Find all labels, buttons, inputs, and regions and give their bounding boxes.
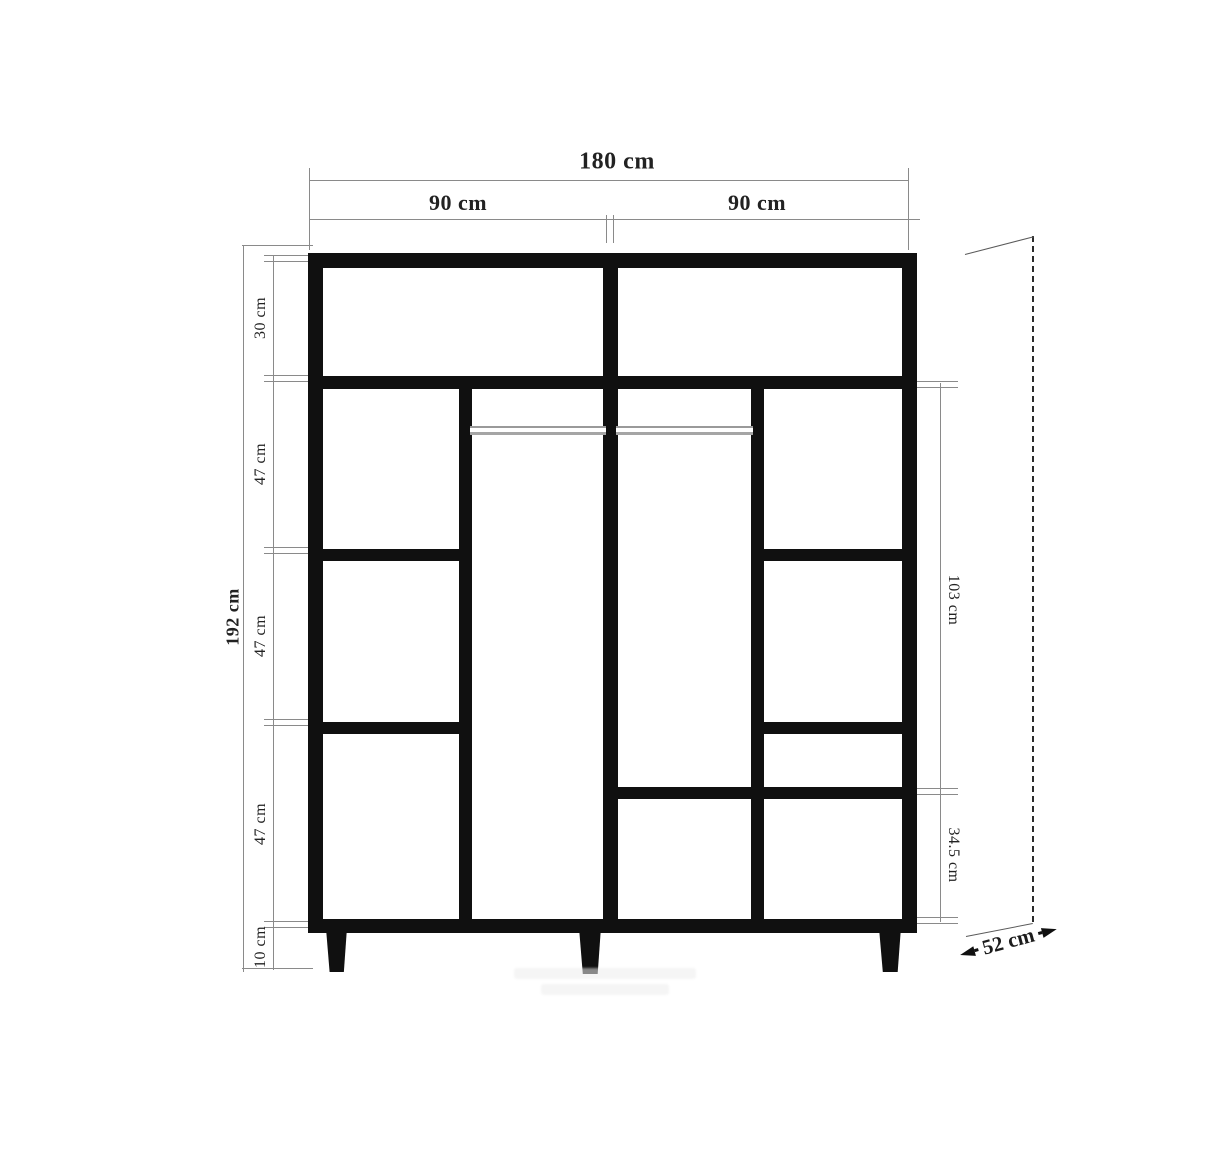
hanging-section-height-label: 103 cm: [944, 575, 962, 626]
door-split-tick-2: [613, 215, 614, 243]
leg-left: [325, 933, 348, 972]
center-divider: [603, 266, 618, 919]
wardrobe-dimension-diagram: 180 cm 90 cm 90 cm 192 cm 30 cm 47 cm 47…: [0, 0, 1214, 1161]
door-width-dimension-line: [309, 219, 920, 220]
segment-tick-3: [264, 719, 314, 726]
depth-projection-top-line: [965, 236, 1034, 255]
left-column-shelf-1: [323, 549, 459, 561]
lower-right-shelf: [618, 787, 904, 799]
wardrobe-right-panel: [902, 253, 917, 933]
right-column-shelf-2: [764, 722, 904, 734]
right-dimension-line: [940, 383, 941, 922]
segment-height-dimension-line: [273, 255, 274, 970]
watermark: [514, 968, 696, 1002]
segment-tick-0: [264, 255, 314, 262]
segment-tick-4: [264, 921, 314, 928]
segment-label-47b: 47 cm: [252, 615, 270, 657]
depth-label: 52 cm: [976, 922, 1041, 962]
height-tick-bottom: [242, 968, 313, 969]
lower-section-height-label: 34.5 cm: [944, 827, 962, 882]
left-section-divider: [459, 389, 472, 919]
segment-label-30: 30 cm: [252, 297, 270, 339]
door-split-tick-1: [606, 215, 607, 243]
width-extension-line-right: [908, 168, 909, 250]
arrowhead-right-icon: [1041, 924, 1058, 938]
right-column-shelf-1: [764, 549, 904, 561]
segment-tick-2: [264, 547, 314, 554]
segment-tick-1: [264, 375, 314, 382]
total-width-dimension-line: [309, 180, 908, 181]
depth-arrow: 52 cm: [957, 917, 1060, 967]
hanging-rod-right: [616, 426, 753, 435]
right-door-width-label: 90 cm: [728, 190, 786, 216]
wardrobe-bottom-panel: [308, 919, 917, 933]
left-door-width-label: 90 cm: [429, 190, 487, 216]
right-tick-bottom: [913, 917, 958, 924]
segment-label-10: 10 cm: [252, 926, 270, 968]
leg-right: [878, 933, 902, 972]
segment-label-47a: 47 cm: [252, 443, 270, 485]
hanging-rod-left: [470, 426, 606, 435]
right-tick-middle: [913, 788, 958, 795]
right-section-divider: [751, 389, 764, 919]
segment-label-47c: 47 cm: [252, 803, 270, 845]
height-tick-top: [242, 245, 313, 246]
right-tick-top: [913, 381, 958, 388]
depth-projection-dashed-line: [1032, 236, 1034, 922]
arrowhead-left-icon: [959, 946, 976, 960]
width-extension-line-left: [309, 168, 310, 250]
total-width-label: 180 cm: [579, 149, 655, 176]
total-height-label: 192 cm: [223, 588, 244, 645]
wardrobe-left-panel: [308, 253, 323, 933]
left-column-shelf-2: [323, 722, 459, 734]
